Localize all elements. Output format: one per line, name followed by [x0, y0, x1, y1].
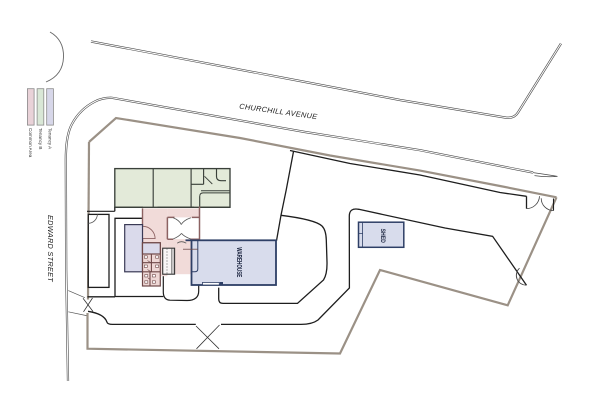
- svg-text:Tenancy A: Tenancy A: [48, 128, 53, 150]
- svg-text:Tenancy B: Tenancy B: [38, 128, 43, 149]
- svg-text:WAREHOUSE: WAREHOUSE: [235, 247, 242, 277]
- svg-text:Common Area: Common Area: [28, 128, 33, 158]
- svg-text:EDWARD STREET: EDWARD STREET: [46, 215, 55, 282]
- svg-text:SHED: SHED: [379, 229, 386, 243]
